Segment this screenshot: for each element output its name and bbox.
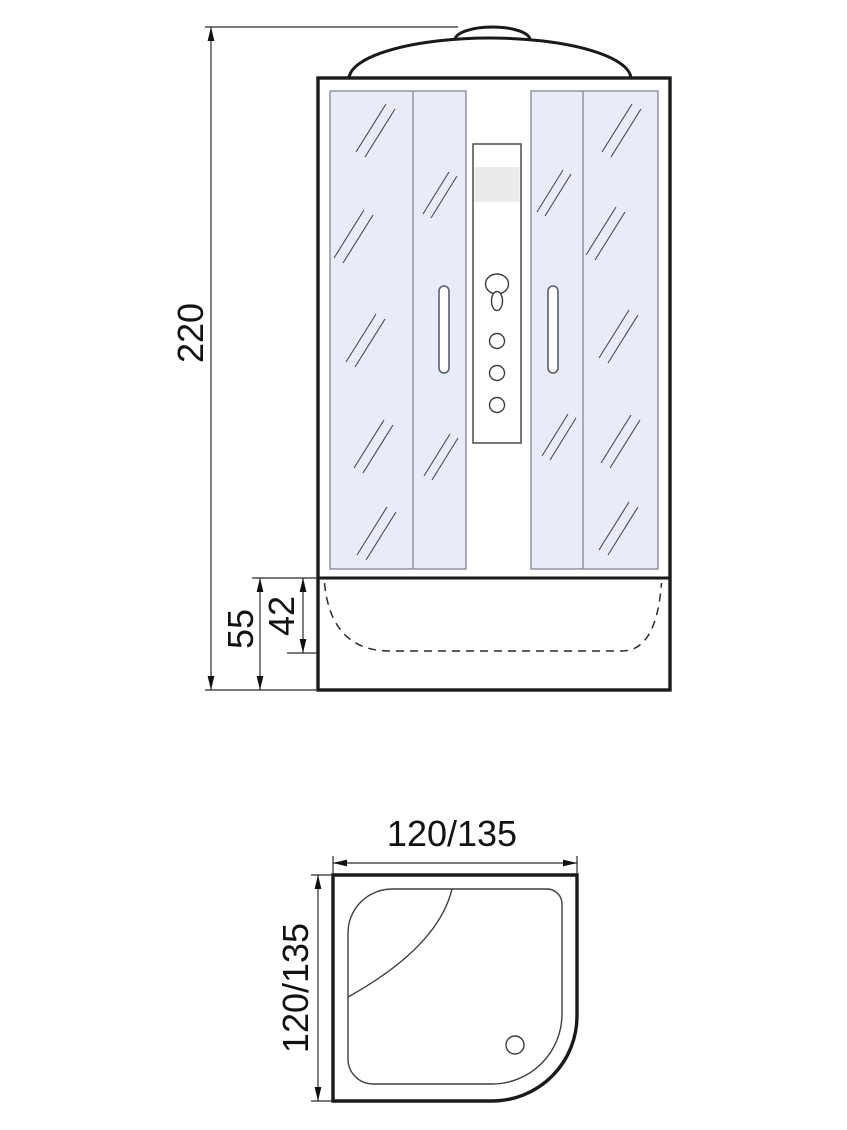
plan-view <box>333 875 577 1101</box>
dim-label-plan-width: 120/135 <box>387 813 517 854</box>
dim-label-overall-height: 220 <box>170 303 211 363</box>
control-knob-icon <box>490 334 505 349</box>
shower-cabin-technical-drawing: 220 55 42 120/135 120/135 <box>0 0 847 1130</box>
arrow-up-icon <box>257 578 264 592</box>
drawing-canvas: 220 55 42 120/135 120/135 <box>0 0 847 1130</box>
front-view <box>318 27 670 690</box>
shower-head-arm <box>492 292 503 311</box>
arrow-left-icon <box>333 860 347 867</box>
left-door-handle <box>439 286 449 373</box>
dome-roof <box>349 38 631 79</box>
arrow-down-icon <box>315 1087 322 1101</box>
column-tinted-band <box>475 167 520 202</box>
arrow-down-icon <box>300 639 307 653</box>
dim-label-plan-depth: 120/135 <box>275 923 316 1053</box>
arrow-down-icon <box>257 676 264 690</box>
drain-icon <box>506 1036 524 1054</box>
tray-outline <box>333 875 577 1101</box>
arrow-down-icon <box>208 676 215 690</box>
arrow-up-icon <box>315 875 322 889</box>
control-knob-icon <box>490 398 505 413</box>
dim-label-tray-inner-depth: 42 <box>261 596 302 636</box>
shower-column <box>473 144 521 443</box>
arrow-right-icon <box>563 860 577 867</box>
right-door-handle <box>548 286 558 373</box>
arrow-up-icon <box>208 27 215 41</box>
dim-label-tray-height: 55 <box>220 609 261 649</box>
control-knob-icon <box>490 366 505 381</box>
arrow-up-icon <box>300 578 307 592</box>
